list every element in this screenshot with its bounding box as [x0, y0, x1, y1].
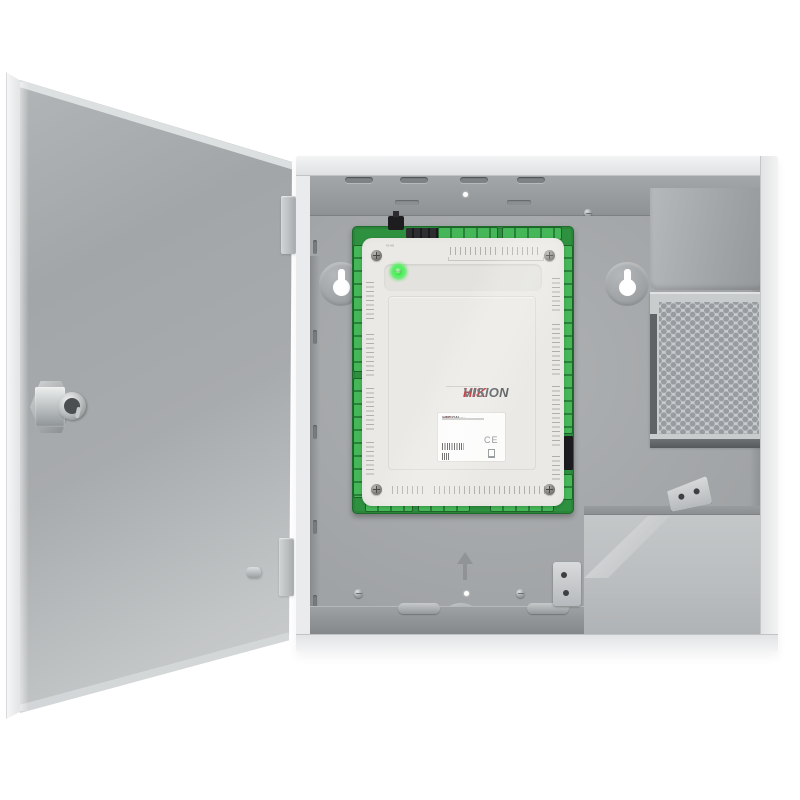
pin-group-bracket: [448, 257, 544, 261]
pin-label-marks: [484, 486, 546, 494]
arrow-stem: [463, 564, 467, 580]
led-status-panel: POWER CLOCK LNK TRANS ALARM LOCK1 LOCK2 …: [384, 264, 542, 291]
pin-label-marks: [366, 334, 374, 378]
logo-line-right: [446, 386, 480, 387]
header-connector[interactable]: [406, 228, 439, 238]
cabinet-flange-bottom: [296, 634, 778, 652]
cabinet-flange-top: [296, 156, 778, 176]
door-hinge-bottom: [279, 538, 294, 596]
cabinet-left-wall: [310, 256, 320, 634]
psu-cover-box: [650, 188, 760, 290]
screw-hole: [463, 192, 468, 197]
knockout-slot: [460, 177, 488, 183]
psu-side-shadow: [650, 314, 657, 434]
side-slot: [313, 425, 317, 439]
side-slot: [313, 330, 317, 344]
mounting-tab-left: [553, 562, 581, 606]
pin-label-marks: [502, 247, 542, 255]
pin-label-marks: [450, 247, 496, 255]
lock-cylinder[interactable]: [58, 392, 86, 420]
pin-label-marks: [392, 486, 426, 494]
switch-label: RS-485: [386, 244, 394, 247]
board-cover: RS-485 POWER CLOCK LNK TRANS ALARM LOCK1…: [362, 238, 564, 506]
psu-vent-grille: [650, 292, 760, 446]
pin-label-marks: [366, 282, 374, 322]
brand-logo: HIKVISION: [362, 378, 564, 394]
switch-lever[interactable]: [393, 211, 399, 217]
cover-screw: [544, 250, 555, 261]
side-slot: [313, 240, 317, 254]
vent-slot: [507, 200, 531, 205]
logo-vision: VISION: [463, 386, 509, 400]
usb-connector[interactable]: [564, 436, 573, 470]
sticker-text-line: [442, 418, 468, 420]
up-arrow-engraving: [450, 552, 480, 588]
door-outer-edge: [6, 72, 20, 719]
door-cam-lock[interactable]: [26, 378, 80, 436]
tab-screw-hole: [678, 493, 685, 500]
keyhole-circle: [333, 279, 350, 296]
door-top-fold: [18, 80, 294, 169]
door-stud: [246, 567, 261, 578]
screw-hole: [464, 591, 469, 596]
cover-screw: [371, 250, 382, 261]
cover-screw: [371, 484, 382, 495]
pin-label-marks: [552, 278, 560, 314]
panel-screw: [516, 589, 525, 598]
cabinet-flange-right: [760, 156, 778, 652]
pin-label-marks: [366, 388, 374, 432]
cable-tie-tab: [398, 603, 440, 614]
psu-bottom-shadow: [650, 439, 760, 448]
barcode: [442, 443, 464, 450]
pin-label-marks: [366, 442, 374, 478]
mounting-keyhole-right: [605, 262, 649, 306]
pin-label-marks: [552, 324, 560, 376]
door-hinge-top: [281, 196, 296, 254]
qr-code: [442, 453, 449, 460]
arrow-head: [457, 552, 473, 564]
lock-keyhole[interactable]: [64, 398, 80, 414]
pin-label-marks: [434, 486, 482, 494]
cabinet-flange-left: [296, 156, 310, 652]
tab-screw-hole: [561, 572, 567, 578]
knockout-slot: [517, 177, 545, 183]
product-photo: RS-485 POWER CLOCK LNK TRANS ALARM LOCK1…: [0, 0, 800, 800]
key-slot-icon: [75, 407, 81, 419]
honeycomb-vent-pattern: [659, 302, 759, 434]
weee-bin-icon: [488, 449, 495, 457]
ce-mark: CE: [484, 435, 499, 445]
pin-label-marks: [552, 386, 560, 446]
tab-screw-hole: [563, 590, 569, 596]
knockout-slot: [345, 177, 373, 183]
access-controller-board: RS-485 POWER CLOCK LNK TRANS ALARM LOCK1…: [352, 222, 574, 514]
keyhole-circle: [619, 279, 636, 296]
knockout-slot: [400, 177, 428, 183]
side-slot: [313, 520, 317, 534]
product-label-sticker: HIKVISION Access Controller CE: [437, 412, 506, 462]
door-bottom-fold: [18, 632, 290, 713]
panel-screw: [354, 589, 363, 598]
tab-screw-hole: [693, 488, 700, 495]
toggle-switch[interactable]: [388, 216, 404, 230]
pin-label-marks: [552, 456, 560, 482]
vent-slot: [395, 200, 419, 205]
